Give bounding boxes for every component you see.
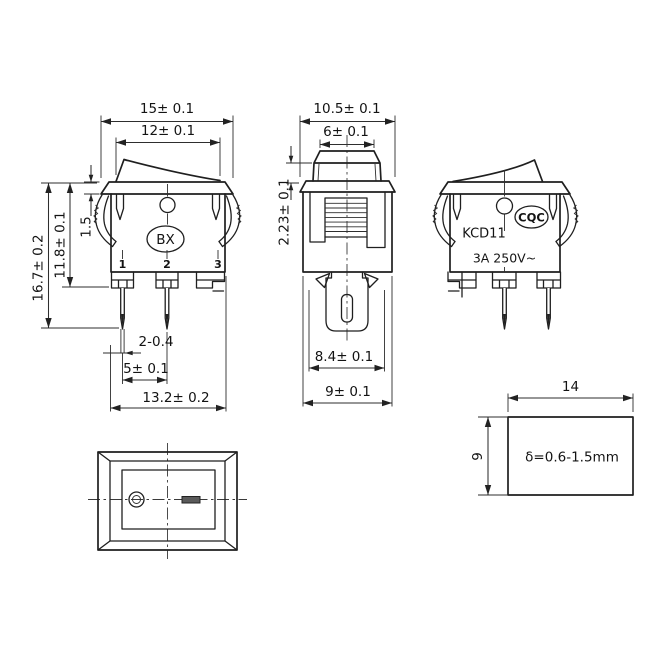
rear-cert-text: CQC bbox=[518, 211, 545, 225]
side-dim-width-top-label: 10.5± 0.1 bbox=[313, 101, 380, 117]
front-pin-label-3: 3 bbox=[214, 258, 222, 271]
front-clip-left bbox=[94, 195, 116, 247]
side-snap-wing-right bbox=[365, 274, 379, 288]
side-dim-rocker-height-label: 2.23± 0.1 bbox=[277, 178, 293, 245]
panel-cutout-view: 9 14 δ=0.6-1.5mm bbox=[470, 379, 633, 495]
front-dim-pin-thickness: 2-0.4 bbox=[103, 334, 173, 355]
rear-pin-terminal-3 bbox=[547, 288, 551, 329]
front-bracket-3 bbox=[197, 272, 225, 291]
front-pin-label-1: 1 bbox=[119, 258, 127, 271]
front-latch-tongue-left bbox=[117, 195, 124, 220]
front-dim-pin-pitch-label: 5± 0.1 bbox=[123, 361, 169, 377]
front-pin-label-2: 2 bbox=[163, 258, 171, 271]
front-dim-height-body-label: 11.8± 0.1 bbox=[53, 211, 69, 278]
side-dim-width-rocker-label: 6± 0.1 bbox=[323, 124, 369, 140]
front-dim-height-body: 11.8± 0.1 bbox=[41, 183, 109, 287]
rear-rocker bbox=[453, 160, 543, 182]
rear-bracket-2 bbox=[493, 272, 517, 288]
front-dim-width-rocker-label: 12± 0.1 bbox=[141, 123, 195, 139]
side-dim-rocker-height: 2.23± 0.1 bbox=[277, 146, 313, 246]
rear-rating-text: 3A 250V~ bbox=[473, 251, 536, 266]
side-dim-width-inner-label: 8.4± 0.1 bbox=[315, 349, 374, 365]
side-flange bbox=[300, 181, 395, 192]
front-clip-right bbox=[219, 195, 241, 247]
cutout-thickness-note: δ=0.6-1.5mm bbox=[525, 450, 619, 466]
rear-pivot-hole bbox=[497, 198, 513, 214]
front-view: BX 1 2 3 15± 0.1 12± 0.1 bbox=[31, 101, 242, 412]
side-dim-width-body: 9± 0.1 bbox=[303, 276, 392, 407]
front-dim-pin-pitch: 5± 0.1 bbox=[123, 361, 169, 380]
front-rocker bbox=[116, 160, 220, 182]
technical-drawing-canvas: BX 1 2 3 15± 0.1 12± 0.1 bbox=[0, 0, 668, 668]
front-dim-flange-thickness-label: 1.5 bbox=[79, 216, 95, 237]
front-flange bbox=[101, 182, 233, 194]
cutout-dim-height: 9 bbox=[470, 417, 488, 495]
side-dim-width-body-label: 9± 0.1 bbox=[325, 384, 371, 400]
cutout-dim-width: 14 bbox=[508, 379, 633, 412]
on-symbol-bar bbox=[182, 497, 200, 504]
front-dim-height-total-label: 16.7± 0.2 bbox=[31, 234, 47, 301]
cutout-dim-width-label: 14 bbox=[562, 379, 579, 395]
side-rib-block bbox=[325, 198, 367, 237]
front-dim-width-top-label: 15± 0.1 bbox=[140, 101, 194, 117]
side-snap-wing-left bbox=[316, 274, 330, 288]
side-body-steps bbox=[310, 192, 385, 248]
rear-model-text: KCD11 bbox=[462, 227, 505, 242]
front-brand-text: BX bbox=[156, 232, 175, 248]
side-body bbox=[303, 192, 392, 272]
rear-latch-tongue-left bbox=[454, 195, 461, 220]
rear-bracket-1 bbox=[448, 272, 476, 297]
top-view bbox=[88, 443, 247, 559]
drawing-sheet: BX 1 2 3 15± 0.1 12± 0.1 bbox=[0, 0, 668, 668]
front-bracket-2 bbox=[156, 272, 178, 288]
rear-pin-terminal-2 bbox=[503, 288, 507, 329]
front-bracket-1 bbox=[112, 272, 134, 288]
side-view: 10.5± 0.1 6± 0.1 2.23± 0.1 8.4± 0.1 9± 0… bbox=[277, 101, 396, 407]
rear-bracket-3 bbox=[537, 272, 561, 288]
front-pivot-hole bbox=[160, 198, 175, 213]
rear-clip-left bbox=[433, 195, 455, 247]
front-latch-tongue-right bbox=[213, 195, 220, 220]
front-dim-width-rocker: 12± 0.1 bbox=[116, 123, 220, 176]
rear-latch-tongue-right bbox=[550, 195, 557, 220]
rear-flange bbox=[440, 182, 570, 194]
cutout-dim-height-label: 9 bbox=[470, 452, 486, 461]
rear-view: CQC KCD11 3A 250V~ bbox=[433, 160, 578, 329]
front-dim-pin-thickness-label: 2-0.4 bbox=[139, 334, 174, 350]
side-dim-width-rocker: 6± 0.1 bbox=[320, 124, 374, 148]
front-dim-width-bottom-label: 13.2± 0.2 bbox=[142, 390, 209, 406]
